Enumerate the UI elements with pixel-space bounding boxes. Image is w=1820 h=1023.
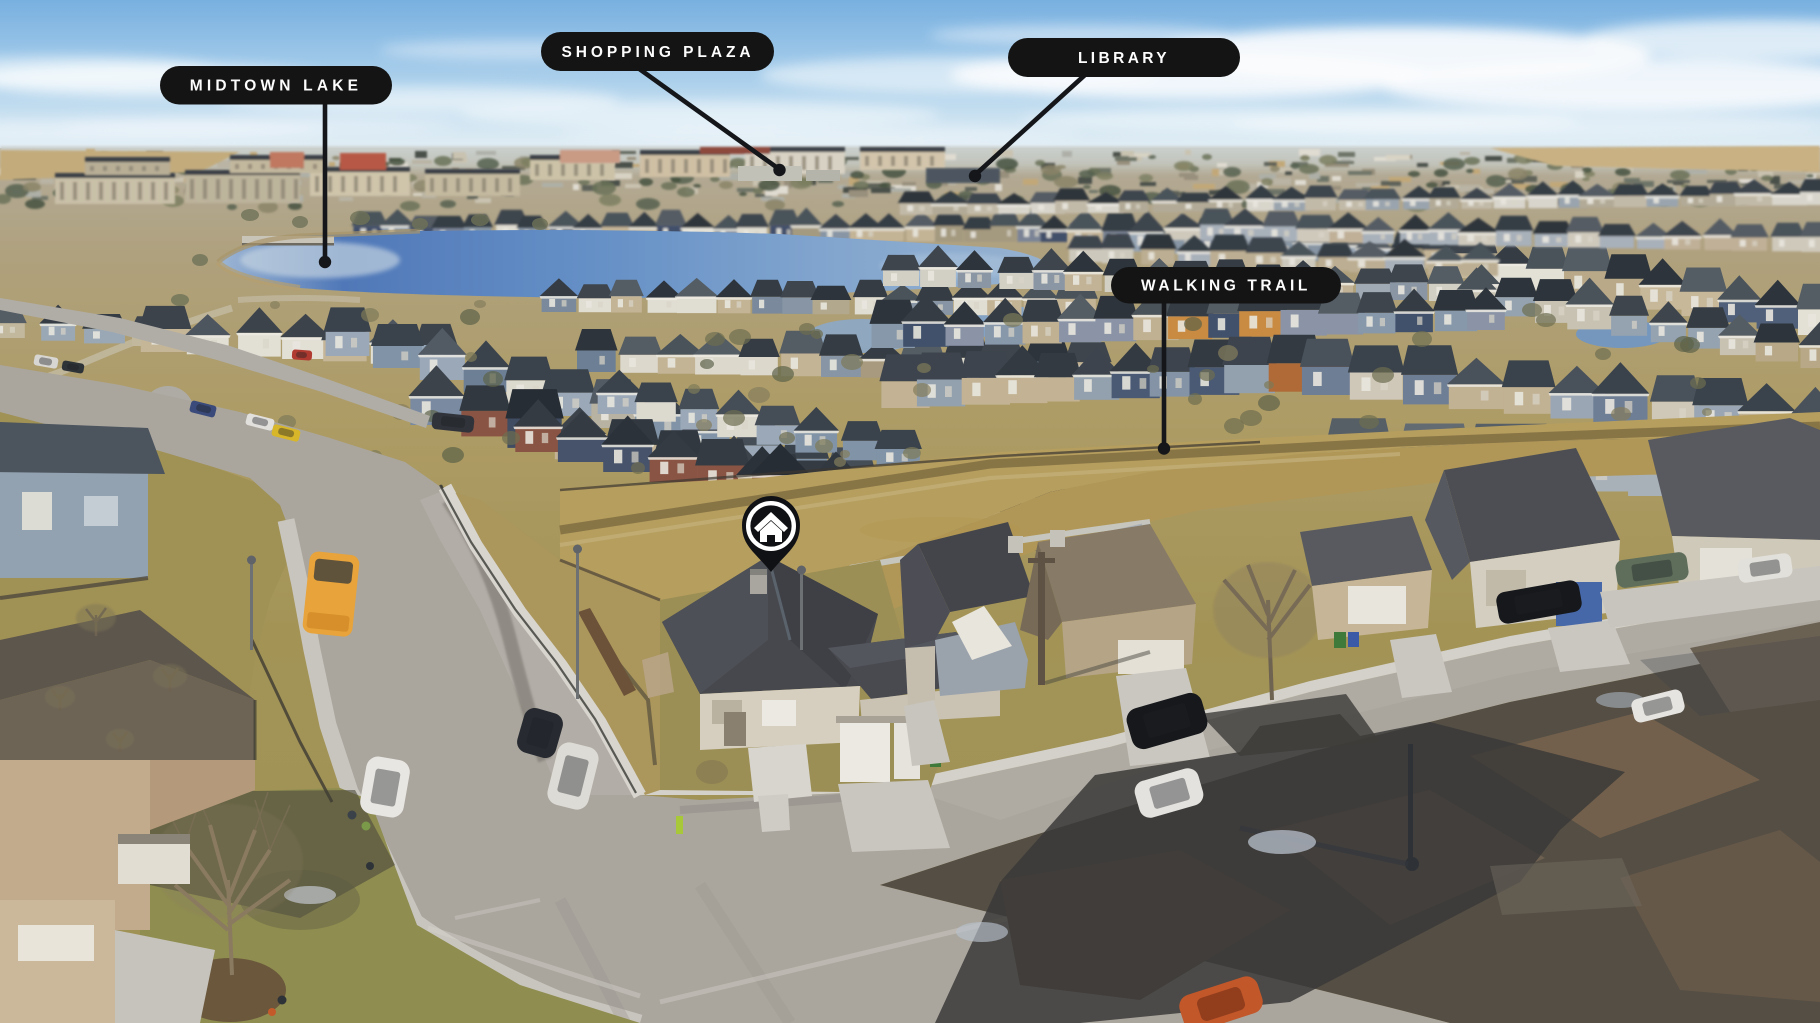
svg-text:WALKING TRAIL: WALKING TRAIL [1141,278,1311,295]
svg-text:LIBRARY: LIBRARY [1078,50,1170,67]
svg-text:SHOPPING PLAZA: SHOPPING PLAZA [561,44,754,61]
svg-text:MIDTOWN LAKE: MIDTOWN LAKE [190,78,362,95]
